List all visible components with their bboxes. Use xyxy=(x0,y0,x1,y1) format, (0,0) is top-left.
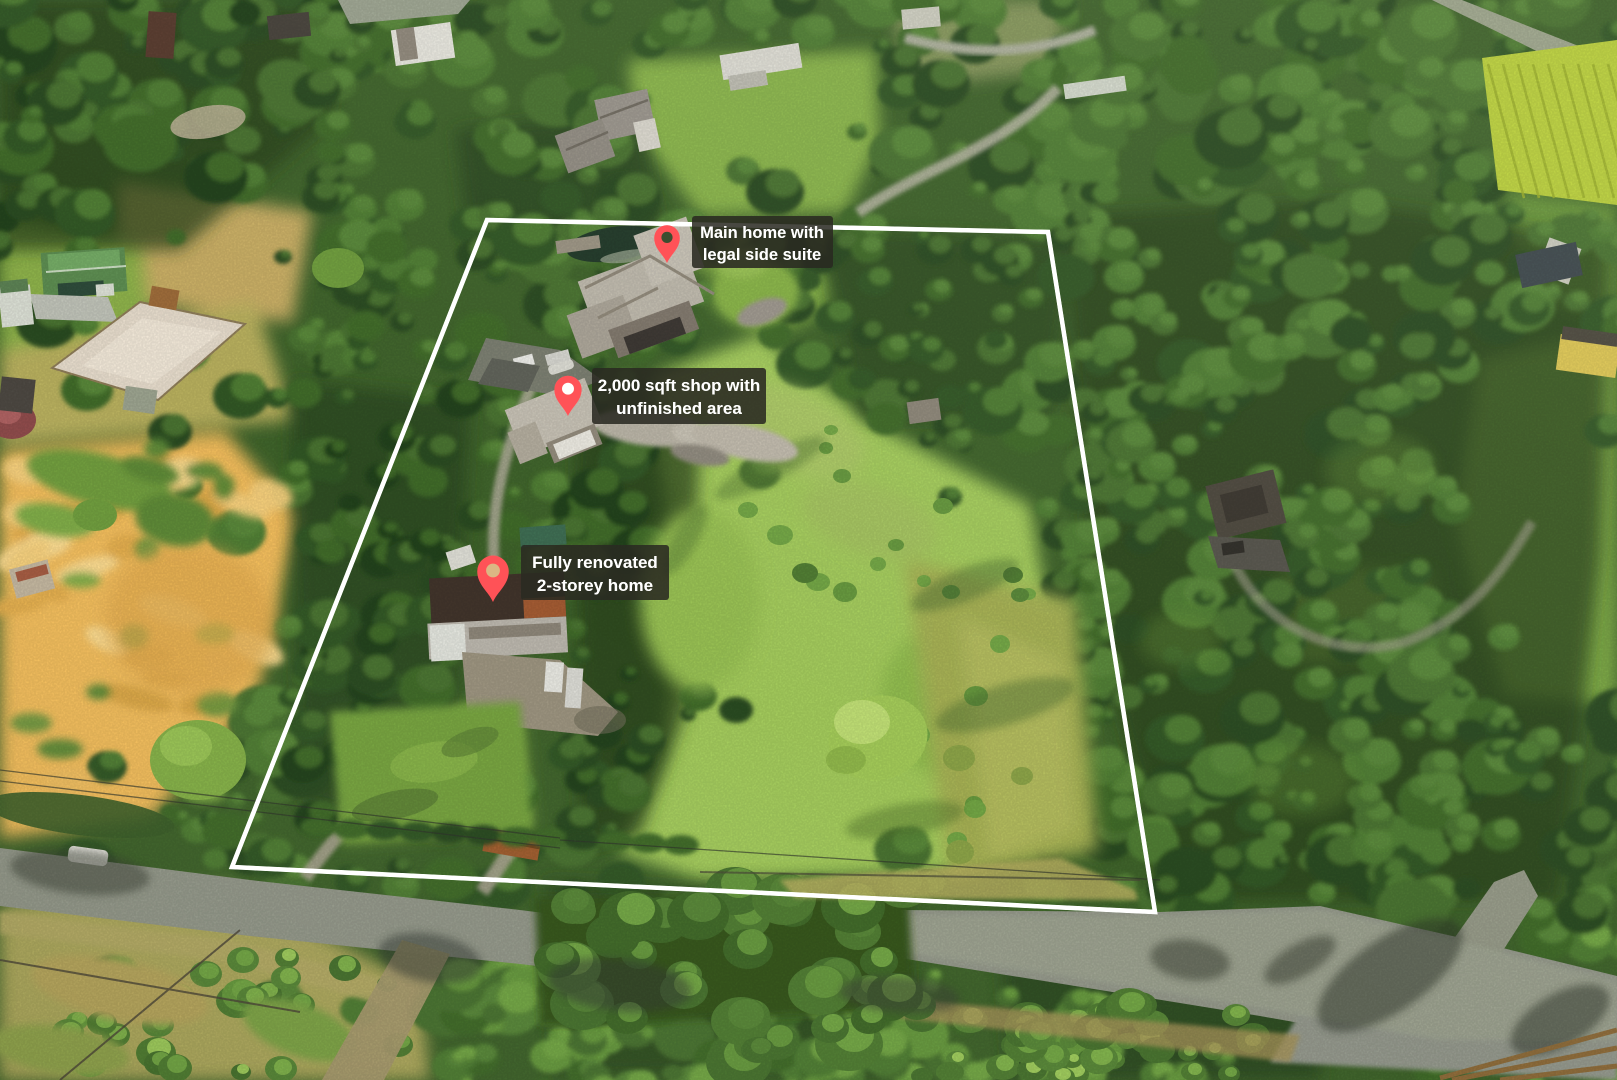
svg-text:unfinished area: unfinished area xyxy=(616,399,742,418)
svg-text:legal side suite: legal side suite xyxy=(703,246,821,264)
svg-text:2,000 sqft shop with: 2,000 sqft shop with xyxy=(598,376,760,395)
svg-text:2-storey home: 2-storey home xyxy=(537,576,653,595)
svg-text:Main home with: Main home with xyxy=(700,224,824,242)
svg-text:Fully renovated: Fully renovated xyxy=(532,553,658,572)
